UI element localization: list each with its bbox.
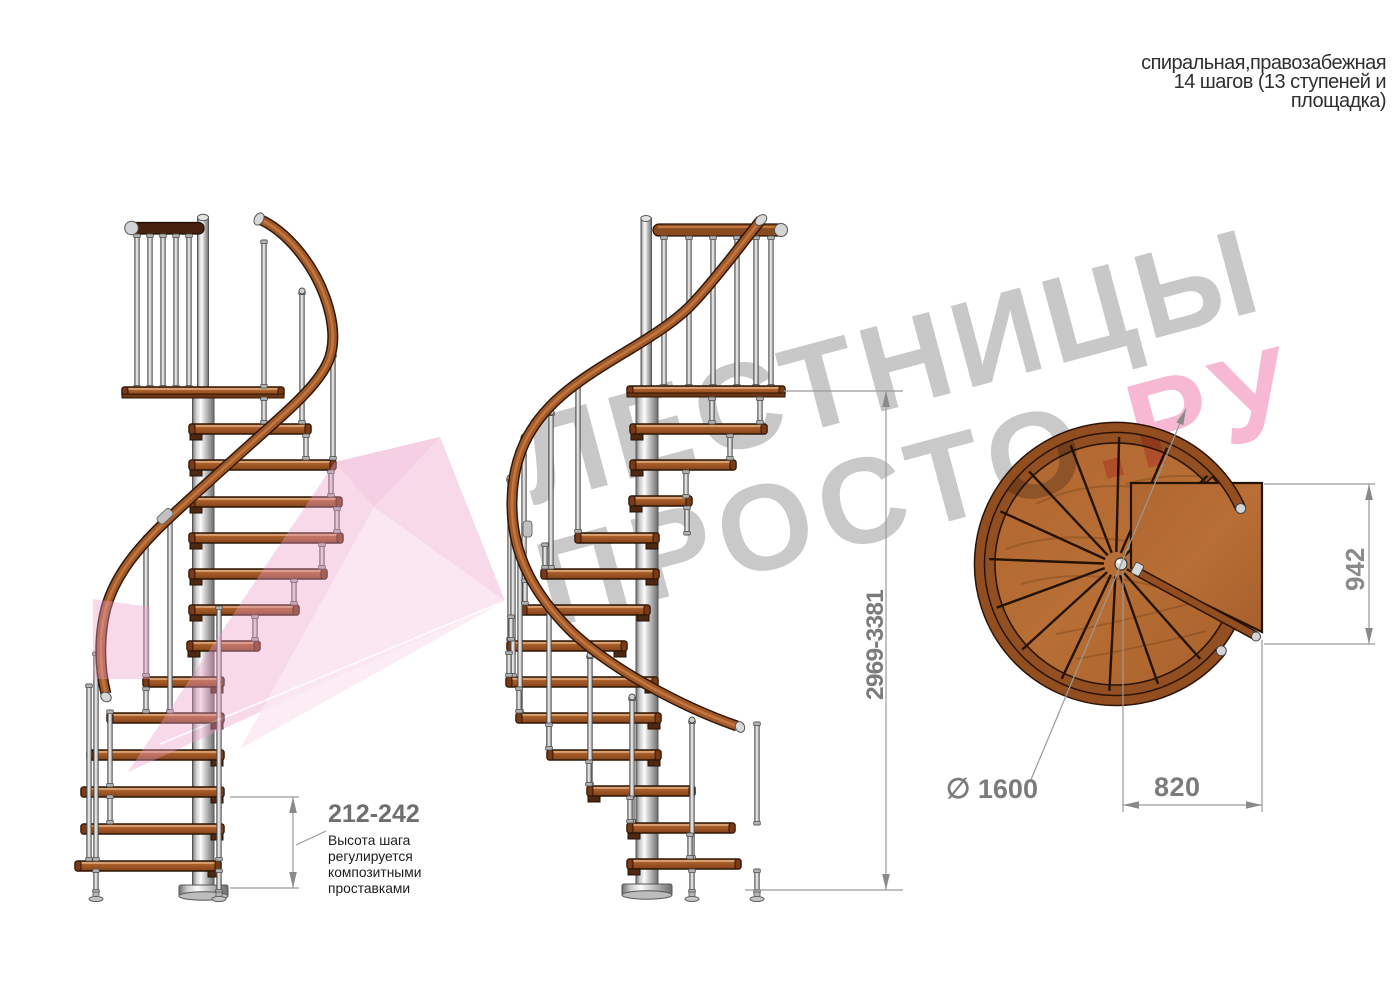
svg-text:Высота шага: Высота шага bbox=[328, 833, 411, 848]
svg-text:композитными: композитными bbox=[328, 865, 421, 880]
svg-text:2969-3381: 2969-3381 bbox=[862, 590, 889, 700]
svg-text:942: 942 bbox=[1340, 548, 1370, 591]
svg-text:регулируется: регулируется bbox=[328, 849, 413, 864]
svg-text:∅ 1600: ∅ 1600 bbox=[946, 773, 1038, 804]
svg-text:820: 820 bbox=[1154, 772, 1201, 802]
svg-text:проставками: проставками bbox=[328, 881, 410, 896]
svg-text:площадка): площадка) bbox=[1291, 90, 1386, 112]
svg-text:212-242: 212-242 bbox=[328, 800, 420, 828]
